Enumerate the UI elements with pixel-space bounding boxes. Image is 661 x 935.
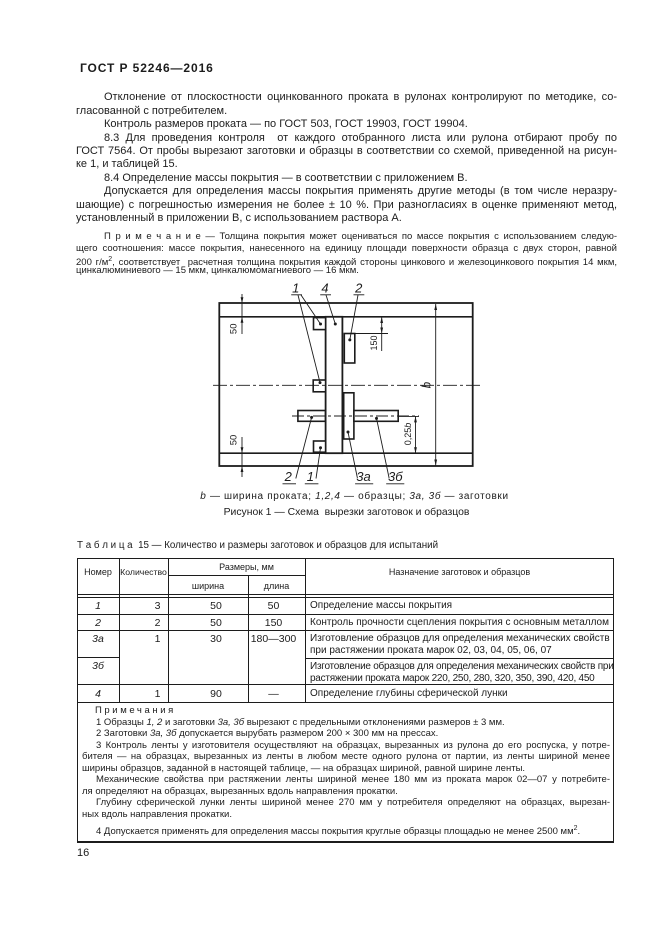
svg-text:0,25b: 0,25b <box>403 423 413 446</box>
svg-text:2: 2 <box>354 280 363 295</box>
svg-text:3б: 3б <box>388 469 403 484</box>
svg-text:4: 4 <box>321 280 328 295</box>
svg-text:150: 150 <box>369 335 379 350</box>
svg-text:b: b <box>422 381 434 388</box>
svg-text:3а: 3а <box>356 469 370 484</box>
svg-text:50: 50 <box>228 435 239 446</box>
svg-text:1: 1 <box>307 469 314 484</box>
svg-text:2: 2 <box>284 469 293 484</box>
svg-text:50: 50 <box>228 324 239 335</box>
svg-text:1: 1 <box>292 280 299 295</box>
